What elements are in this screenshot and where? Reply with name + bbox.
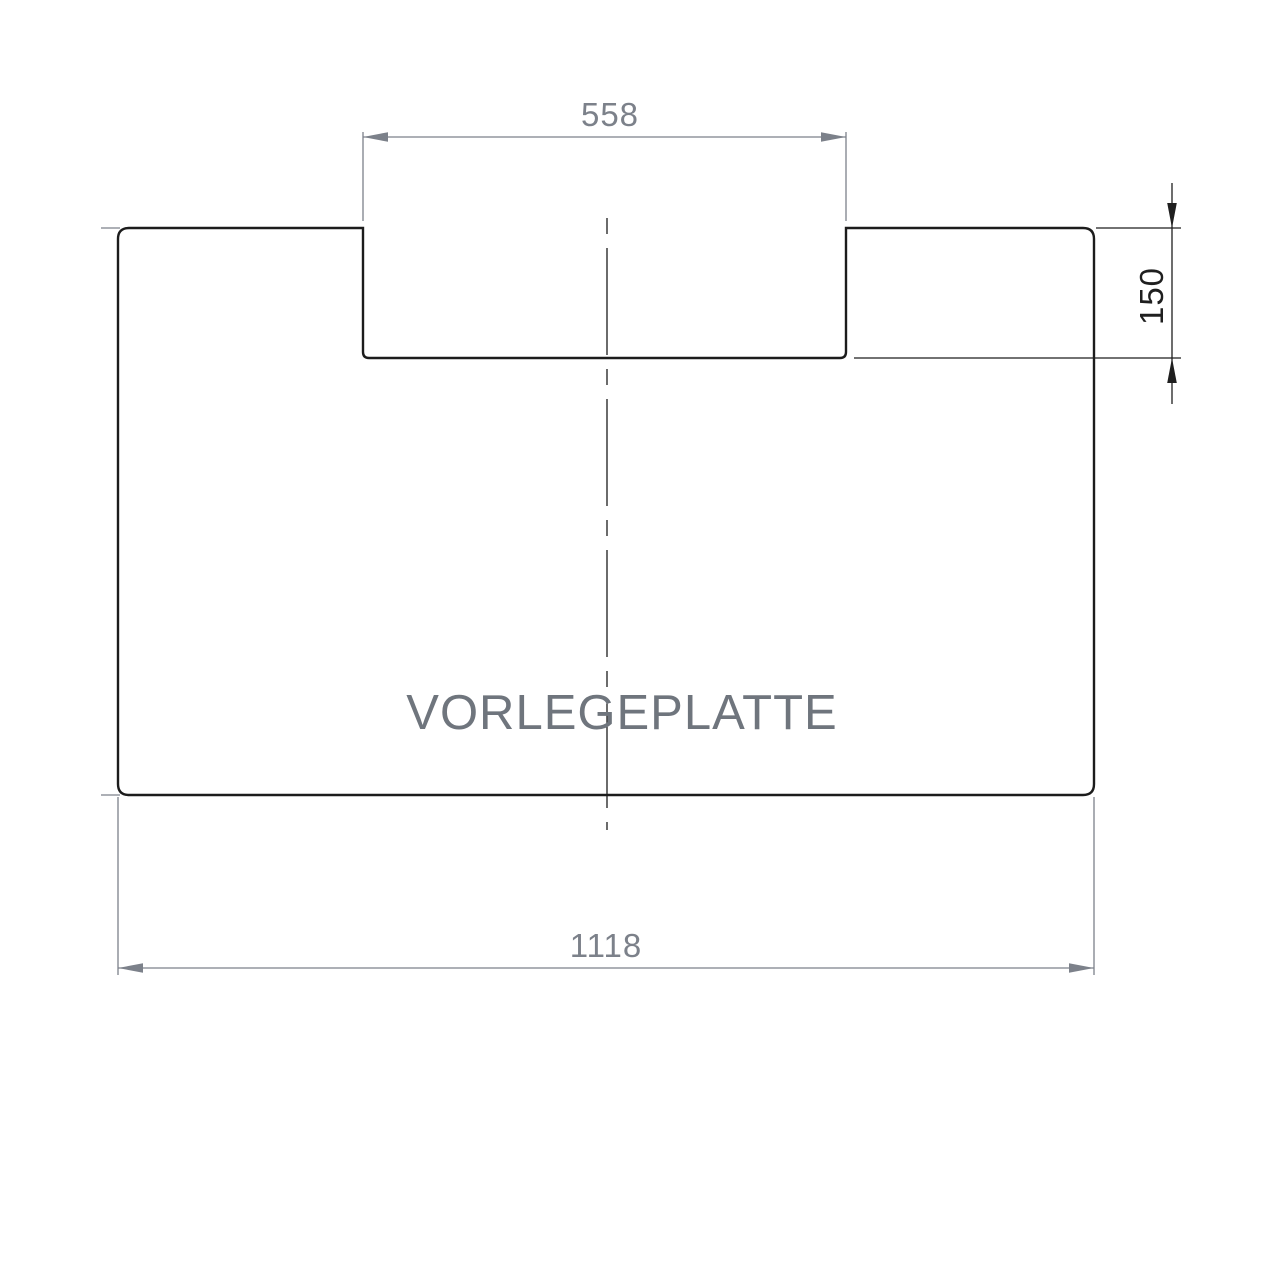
dim-bottom-value: 1118 [570,927,643,964]
drawing-canvas: 558 150 1118 VORLEGEPLATTE [0,0,1280,1280]
technical-drawing: 558 150 1118 VORLEGEPLATTE [0,0,1280,1280]
dim-right-arrow-up [1167,358,1177,383]
dimension-right: 150 [854,183,1181,404]
dim-bottom-arrow-left [118,963,143,973]
dim-top-arrow-right [821,132,846,142]
part-title: VORLEGEPLATTE [406,686,837,740]
dim-right-arrow-down [1167,203,1177,228]
dim-top-value: 558 [581,96,639,133]
dim-bottom-arrow-right [1069,963,1094,973]
dimension-bottom: 1118 [118,797,1094,975]
dim-right-value: 150 [1133,267,1170,325]
dimension-top: 558 [363,96,846,221]
dim-top-arrow-left [363,132,388,142]
